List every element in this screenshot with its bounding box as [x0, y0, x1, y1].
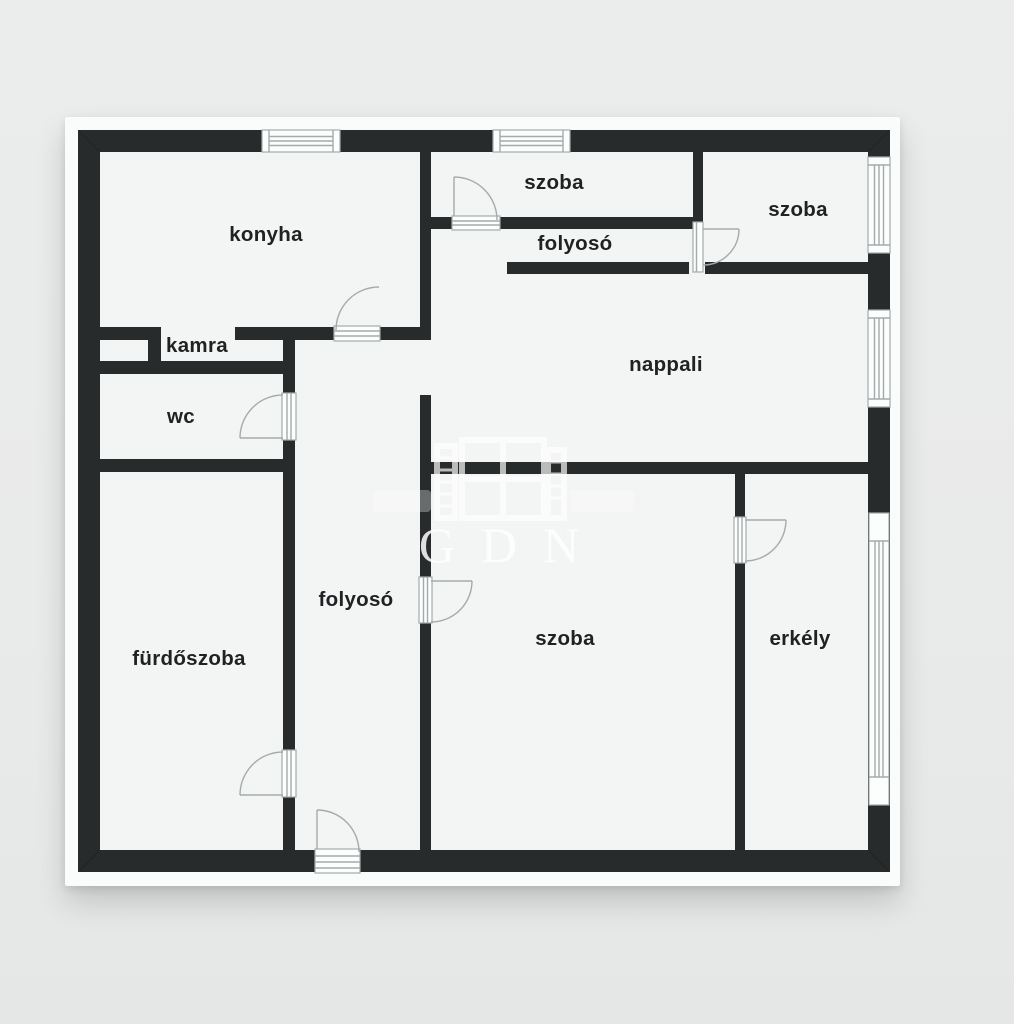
wall-exterior-top	[78, 130, 890, 152]
wall-wc-top	[100, 361, 295, 374]
room-label-szoba-top: szoba	[524, 171, 584, 194]
room-label-furdoszoba: fürdőszoba	[132, 647, 246, 670]
wall-konyha-right	[420, 152, 431, 340]
watermark-smudge	[570, 490, 634, 512]
watermark-smudge	[373, 490, 431, 512]
room-label-wc: wc	[166, 405, 195, 428]
wall-exterior-bottom	[78, 850, 890, 872]
room-label-folyoso-upper: folyosó	[538, 232, 613, 255]
window-szoba-top-right	[868, 157, 890, 253]
wall-exterior-left	[78, 130, 100, 872]
window-szoba-top	[493, 130, 570, 152]
floorplan-canvas: GDN	[0, 0, 1014, 1024]
wall-folyoso-nappali	[507, 262, 868, 274]
page-background: GDN	[0, 0, 1014, 1024]
room-label-nappali: nappali	[629, 353, 703, 376]
window-nappali	[868, 310, 890, 407]
wall-nappali-bottom	[420, 462, 868, 474]
window-erkely-glazing	[869, 513, 889, 805]
room-label-folyoso-lower: folyosó	[319, 588, 394, 611]
floor-area	[78, 130, 890, 872]
room-label-szoba-bottom: szoba	[535, 627, 595, 650]
wall-kamra-stub	[148, 327, 161, 364]
window-konyha	[262, 130, 340, 152]
wall-szoba-divider	[693, 152, 703, 225]
room-label-kamra: kamra	[166, 334, 228, 357]
wall-wc-bottom	[100, 459, 295, 472]
room-label-szoba-top-right: szoba	[768, 198, 828, 221]
watermark-text: GDN	[419, 517, 605, 573]
room-label-konyha: konyha	[229, 223, 303, 246]
room-label-erkely: erkély	[769, 627, 830, 650]
